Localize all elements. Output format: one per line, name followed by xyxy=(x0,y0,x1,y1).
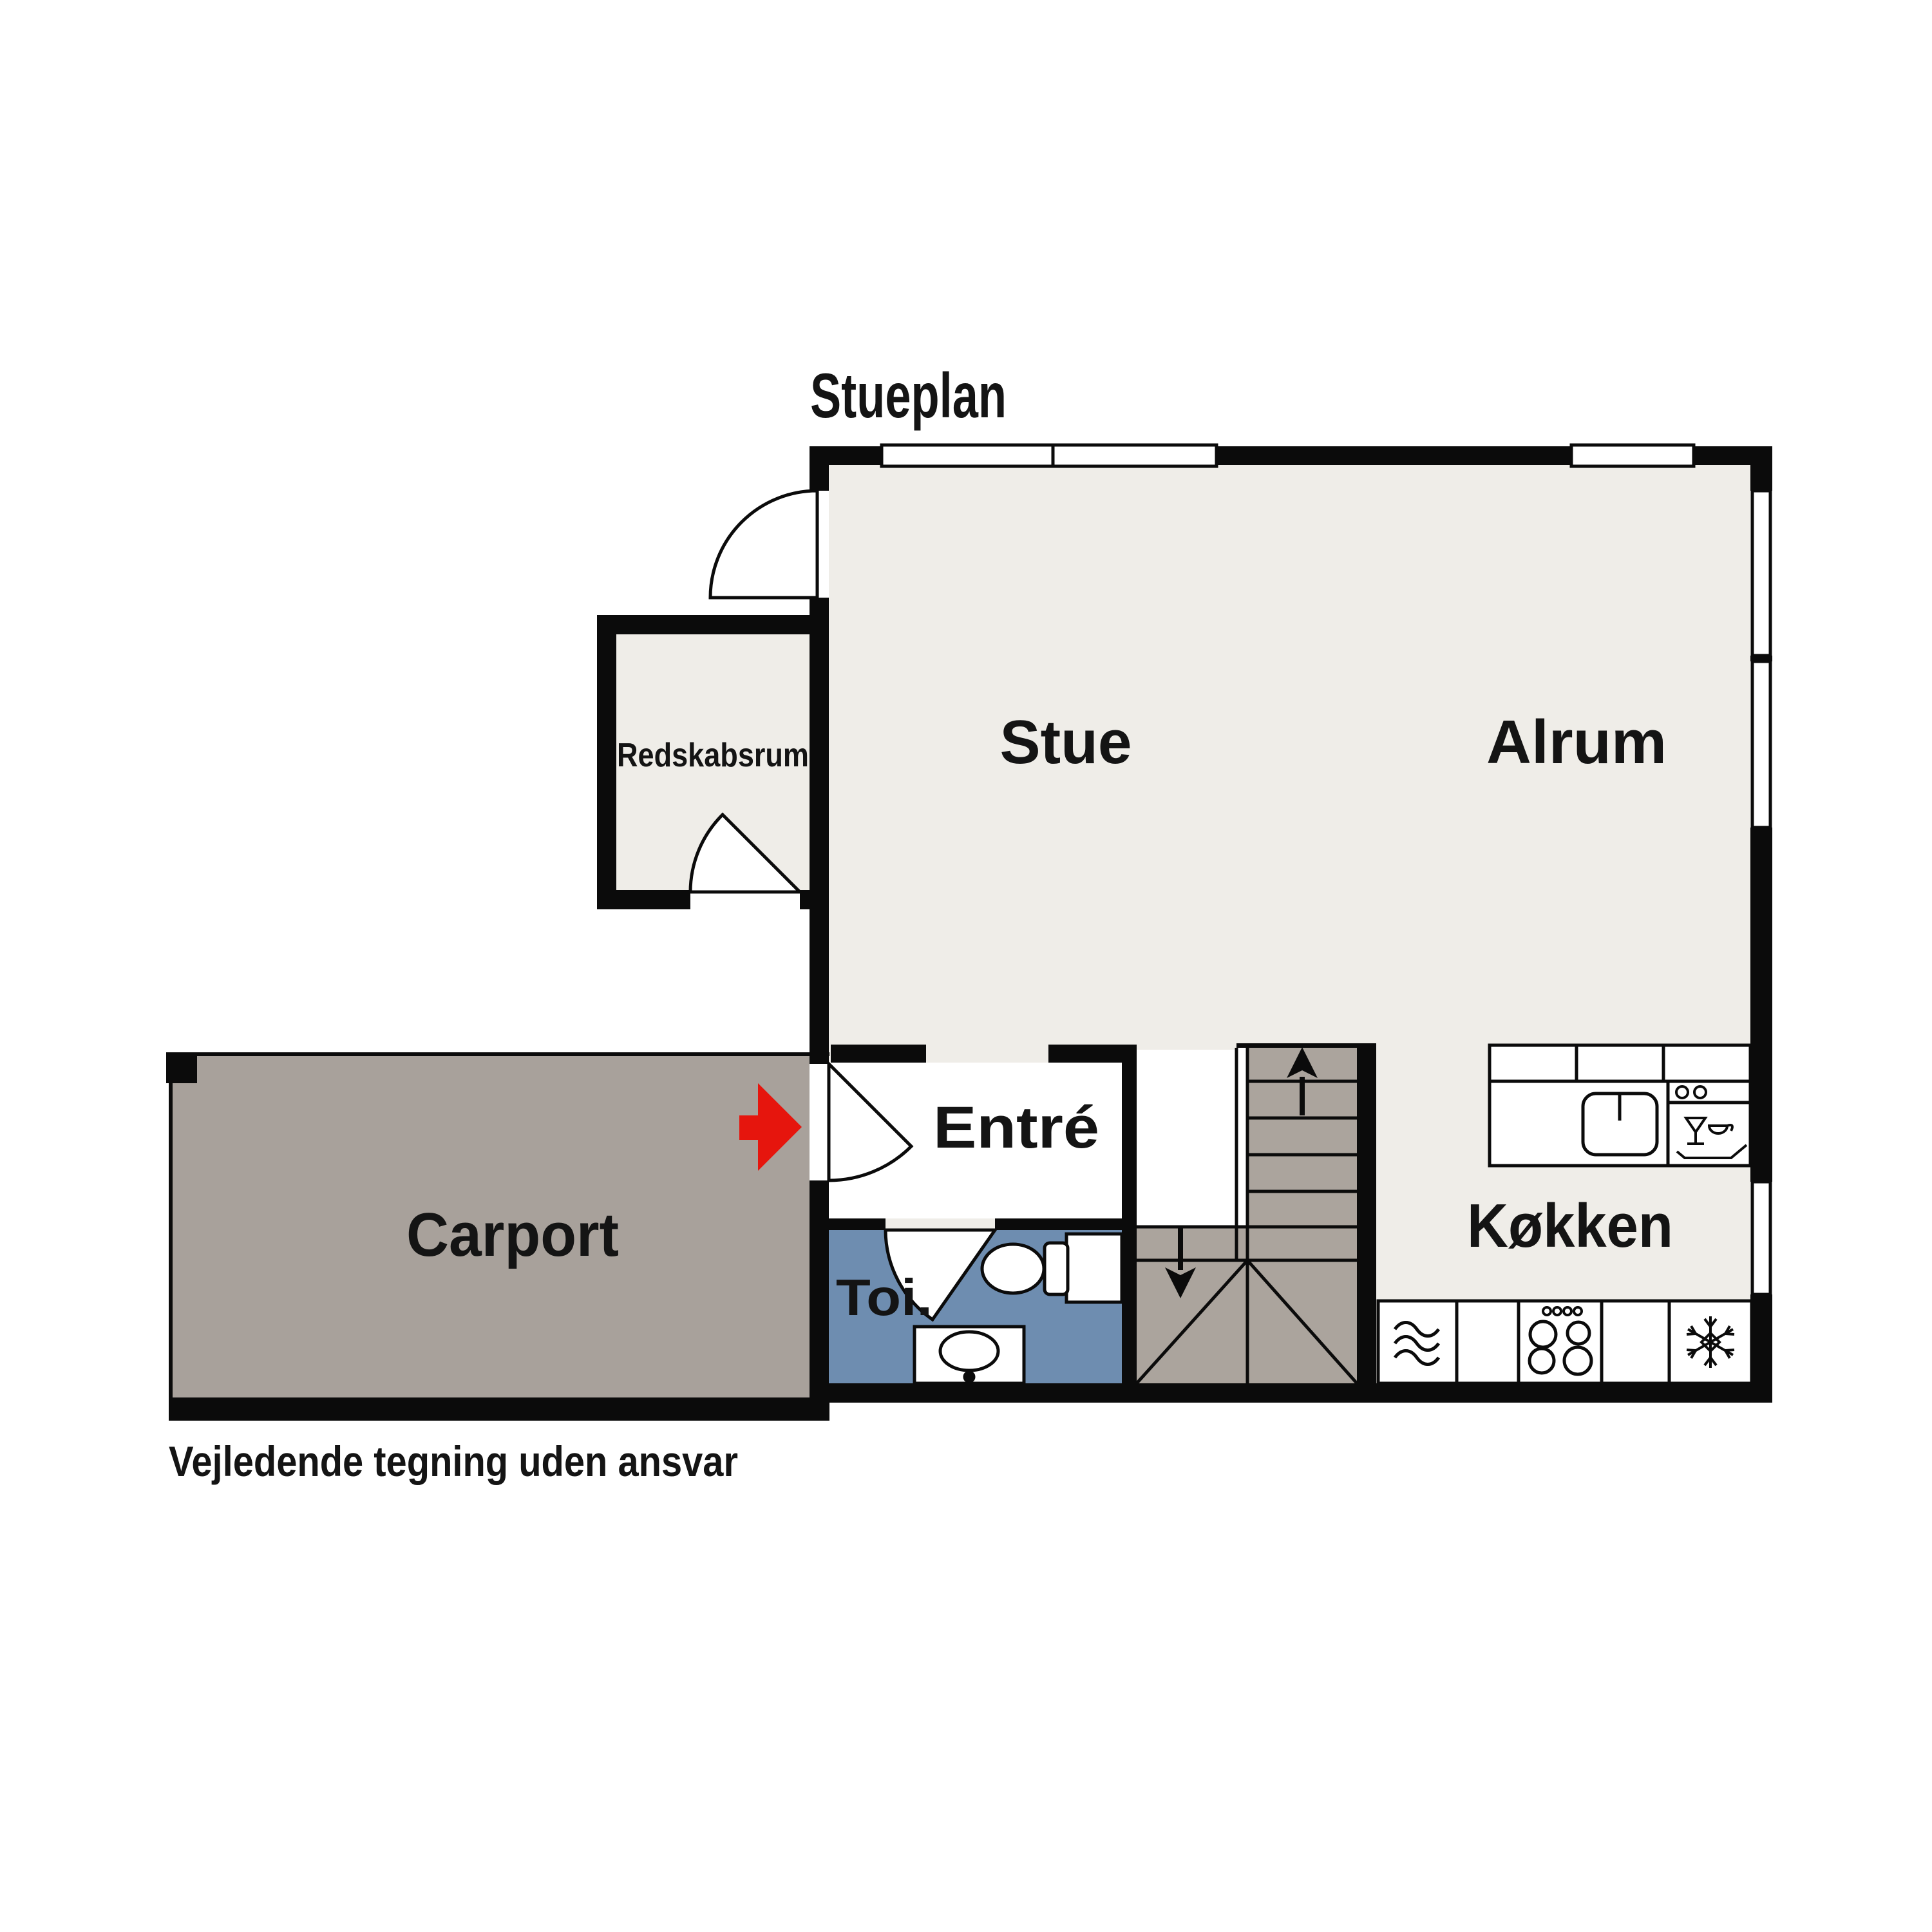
window-top-right xyxy=(1571,445,1694,466)
wall-entre-toilet-right xyxy=(995,1218,1122,1230)
wall-stue-entre-left xyxy=(831,1045,926,1063)
carport-bottom-band xyxy=(169,1397,829,1421)
washbasin-icon xyxy=(914,1327,1024,1383)
stair-landing xyxy=(1137,1227,1247,1260)
carport-top-line xyxy=(169,1052,829,1056)
wall-redskabsrum-bottom-left xyxy=(597,890,690,909)
wall-redskabsrum-top xyxy=(597,615,810,634)
stair-hall-floor xyxy=(1137,1050,1236,1227)
wall-entre-stairs xyxy=(1122,1063,1137,1383)
toilet-icon xyxy=(982,1243,1068,1294)
room-label-entre: Entré xyxy=(933,1095,1099,1160)
room-label-redskabsrum: Redskabsrum xyxy=(617,737,809,774)
page-title: Stueplan xyxy=(810,360,1007,431)
room-label-carport: Carport xyxy=(406,1200,619,1269)
room-label-kitchen: Køkken xyxy=(1467,1191,1673,1260)
cabinet-box-2 xyxy=(1602,1301,1669,1383)
wall-bottom xyxy=(810,1383,1772,1403)
window-right-upper-1 xyxy=(1752,491,1770,656)
carport-left-line xyxy=(169,1052,173,1421)
room-label-toilet: Toi. xyxy=(836,1269,933,1326)
wall-stue-entre-right xyxy=(1048,1045,1137,1063)
wall-entre-toilet-left xyxy=(829,1218,885,1230)
wall-stairs-right xyxy=(1357,1043,1376,1383)
floor-plan: Stueplan Stue Alrum Redskabsrum Carport … xyxy=(0,0,1932,1932)
window-right-upper-2 xyxy=(1752,661,1770,828)
window-top-large xyxy=(882,445,1217,466)
wall-top-left-corner xyxy=(810,446,829,491)
carport-post xyxy=(166,1052,197,1083)
disclaimer-text: Vejledende tegning uden ansvar xyxy=(169,1437,738,1485)
door-arc-stue-garden xyxy=(710,491,817,598)
toilet-cabinet xyxy=(1066,1234,1122,1302)
wall-right-mid xyxy=(1750,828,1772,1182)
wall-redskabsrum-left xyxy=(597,634,616,909)
wall-left-upper xyxy=(810,598,829,1064)
room-label-alrum: Alrum xyxy=(1486,708,1667,777)
wall-top-right-corner xyxy=(1750,446,1772,491)
cabinet-box-1 xyxy=(1457,1301,1519,1383)
window-right-lower xyxy=(1752,1182,1770,1294)
stairs-top-line xyxy=(1236,1043,1357,1048)
wall-left-lower xyxy=(810,1180,829,1383)
room-label-stue: Stue xyxy=(1000,708,1132,777)
wall-redskabsrum-bottom-right xyxy=(800,890,829,909)
staircase xyxy=(1137,1047,1357,1383)
